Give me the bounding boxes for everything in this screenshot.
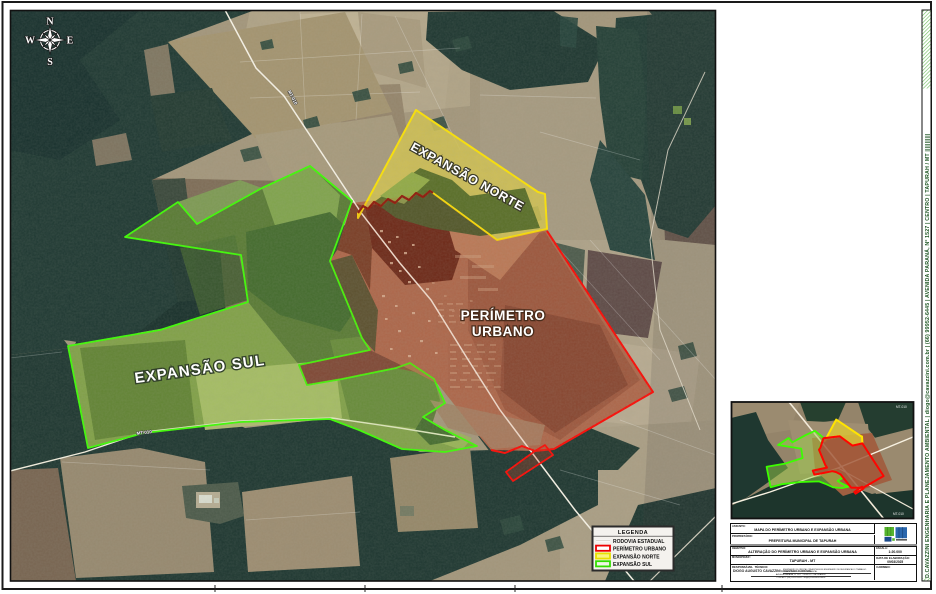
svg-text:EXPANSÃO NORTE: EXPANSÃO NORTE [613, 553, 660, 560]
svg-text:S: S [47, 57, 53, 68]
svg-text:RODOVIA ESTADUAL: RODOVIA ESTADUAL [613, 539, 664, 545]
svg-text:EXPANSÃO SUL: EXPANSÃO SUL [613, 561, 652, 568]
svg-text:MT-010: MT-010 [896, 405, 907, 409]
svg-text:W: W [25, 36, 35, 47]
svg-text:URBANO: URBANO [472, 324, 534, 339]
svg-text:PERÍMETRO URBANO: PERÍMETRO URBANO [613, 545, 666, 553]
svg-text:N: N [46, 17, 54, 28]
svg-text:LEGENDA: LEGENDA [618, 530, 648, 536]
svg-text:PERÍMETRO: PERÍMETRO [461, 308, 546, 323]
svg-text:E: E [67, 36, 74, 47]
svg-text:MT-010: MT-010 [893, 512, 904, 516]
svg-text:D.CAVAZZINI ENGENHARIA E PLANE: D.CAVAZZINI ENGENHARIA E PLANEJAMENTO AM… [924, 133, 931, 578]
